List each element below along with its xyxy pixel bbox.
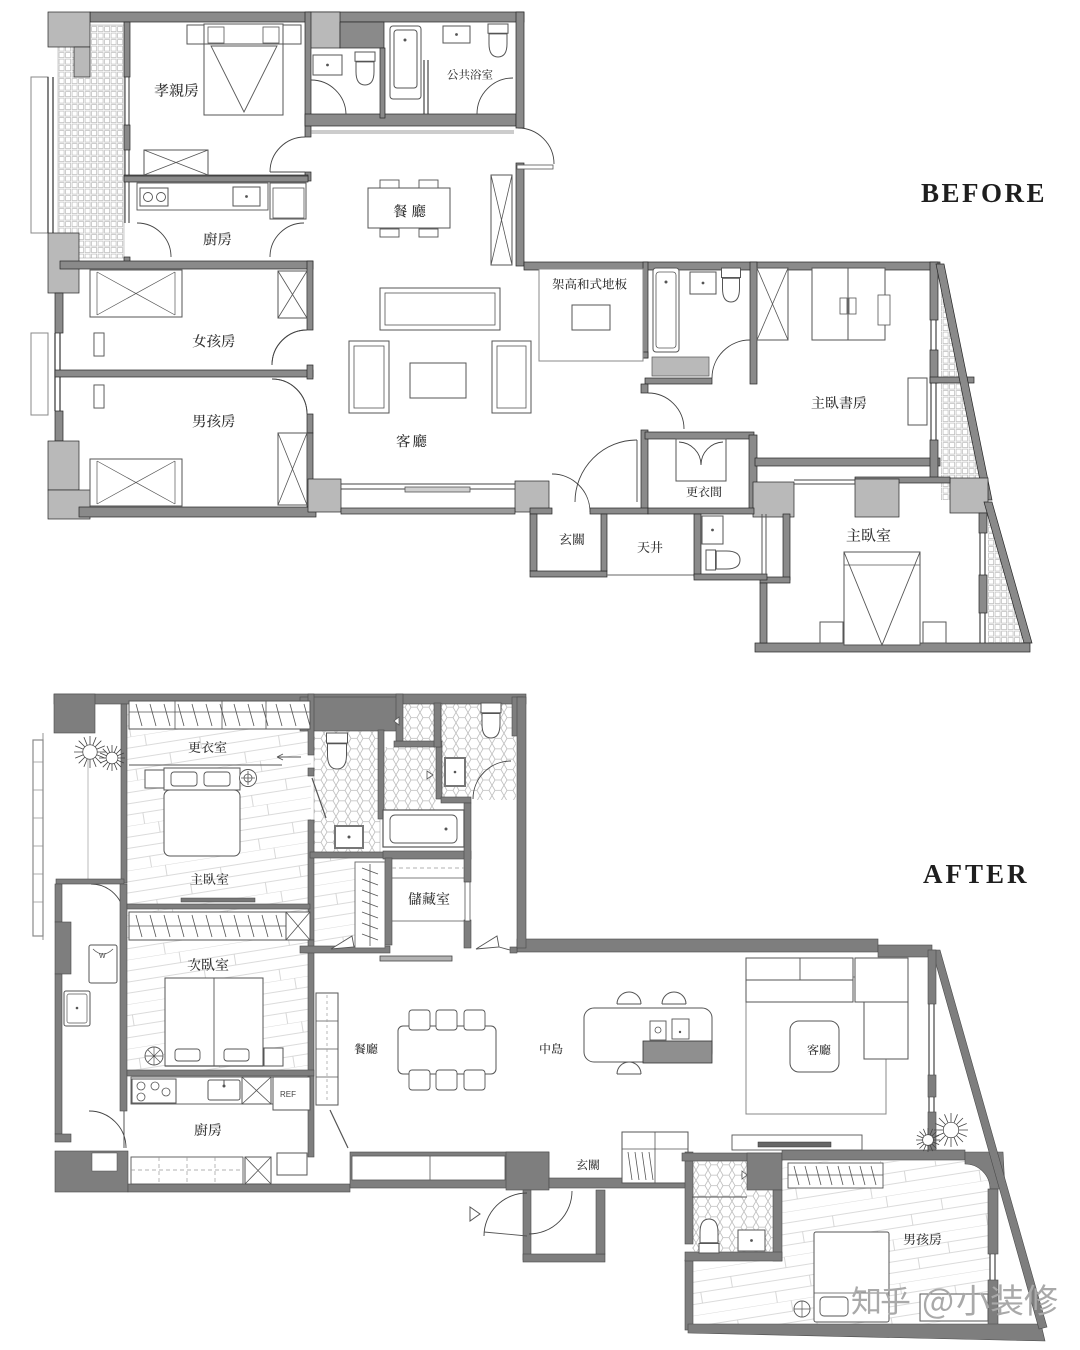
- svg-text:W: W: [99, 953, 106, 960]
- svg-text:AFTER: AFTER: [923, 859, 1030, 889]
- svg-text:BEFORE: BEFORE: [921, 178, 1047, 208]
- svg-text:REF: REF: [280, 1090, 296, 1099]
